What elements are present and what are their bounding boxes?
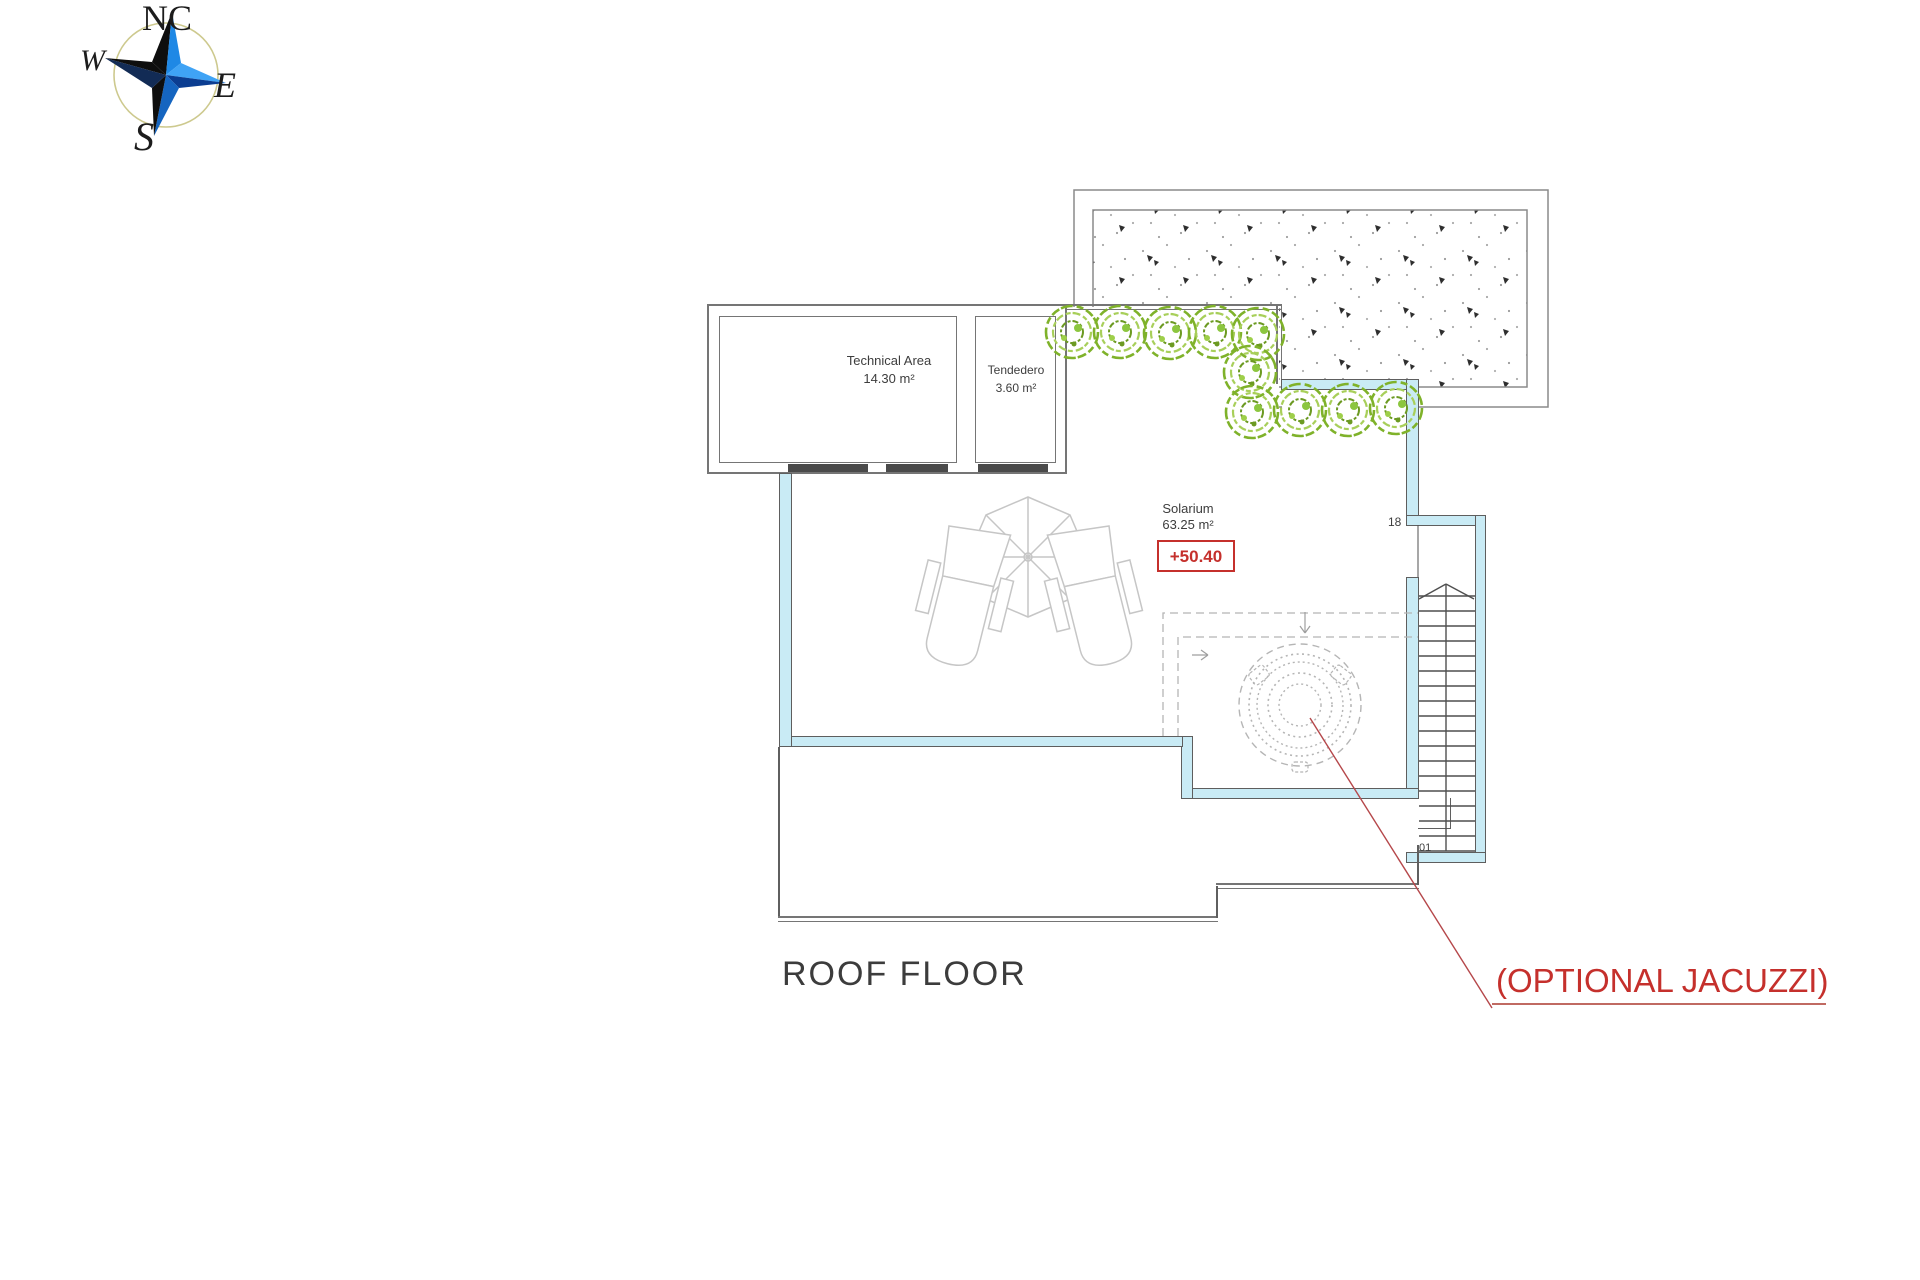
- floor-plan: NC W E S Technical Area 14.30 m² Tendede…: [0, 0, 1920, 1280]
- solarium-size: 63.25 m²: [1128, 517, 1248, 533]
- compass-west-label: W: [80, 44, 108, 77]
- sun-lounger: [1034, 517, 1153, 674]
- tendedero-label: Tendedero: [971, 363, 1061, 378]
- compass-east-label: E: [213, 65, 236, 105]
- direction-arrow-icon: [1192, 612, 1310, 660]
- solarium-label: Solarium: [1128, 501, 1248, 517]
- compass-south-label: S: [134, 114, 154, 159]
- plan-title: ROOF FLOOR: [782, 953, 1027, 996]
- drawing-layer: [0, 0, 1920, 1280]
- tendedero-size: 3.60 m²: [971, 381, 1061, 396]
- bush-row: [1046, 306, 1422, 438]
- stair-riser-bottom-label: 01: [1419, 842, 1431, 856]
- compass-rose-icon: NC W E S: [36, 0, 256, 175]
- technical-area-size: 14.30 m²: [789, 371, 989, 387]
- level-marker: +50.40: [1157, 540, 1235, 572]
- compass-north-label: NC: [142, 0, 192, 38]
- annotation-underline: [1492, 1003, 1826, 1005]
- setback-lines: [1163, 613, 1418, 736]
- staircase: [1418, 525, 1475, 851]
- stair-riser-top-label: 18: [1388, 515, 1401, 530]
- sun-lounger: [905, 517, 1024, 674]
- jacuzzi: [1239, 644, 1361, 772]
- technical-area-label: Technical Area: [789, 353, 989, 369]
- jacuzzi-annotation: (OPTIONAL JACUZZI): [1496, 962, 1828, 1000]
